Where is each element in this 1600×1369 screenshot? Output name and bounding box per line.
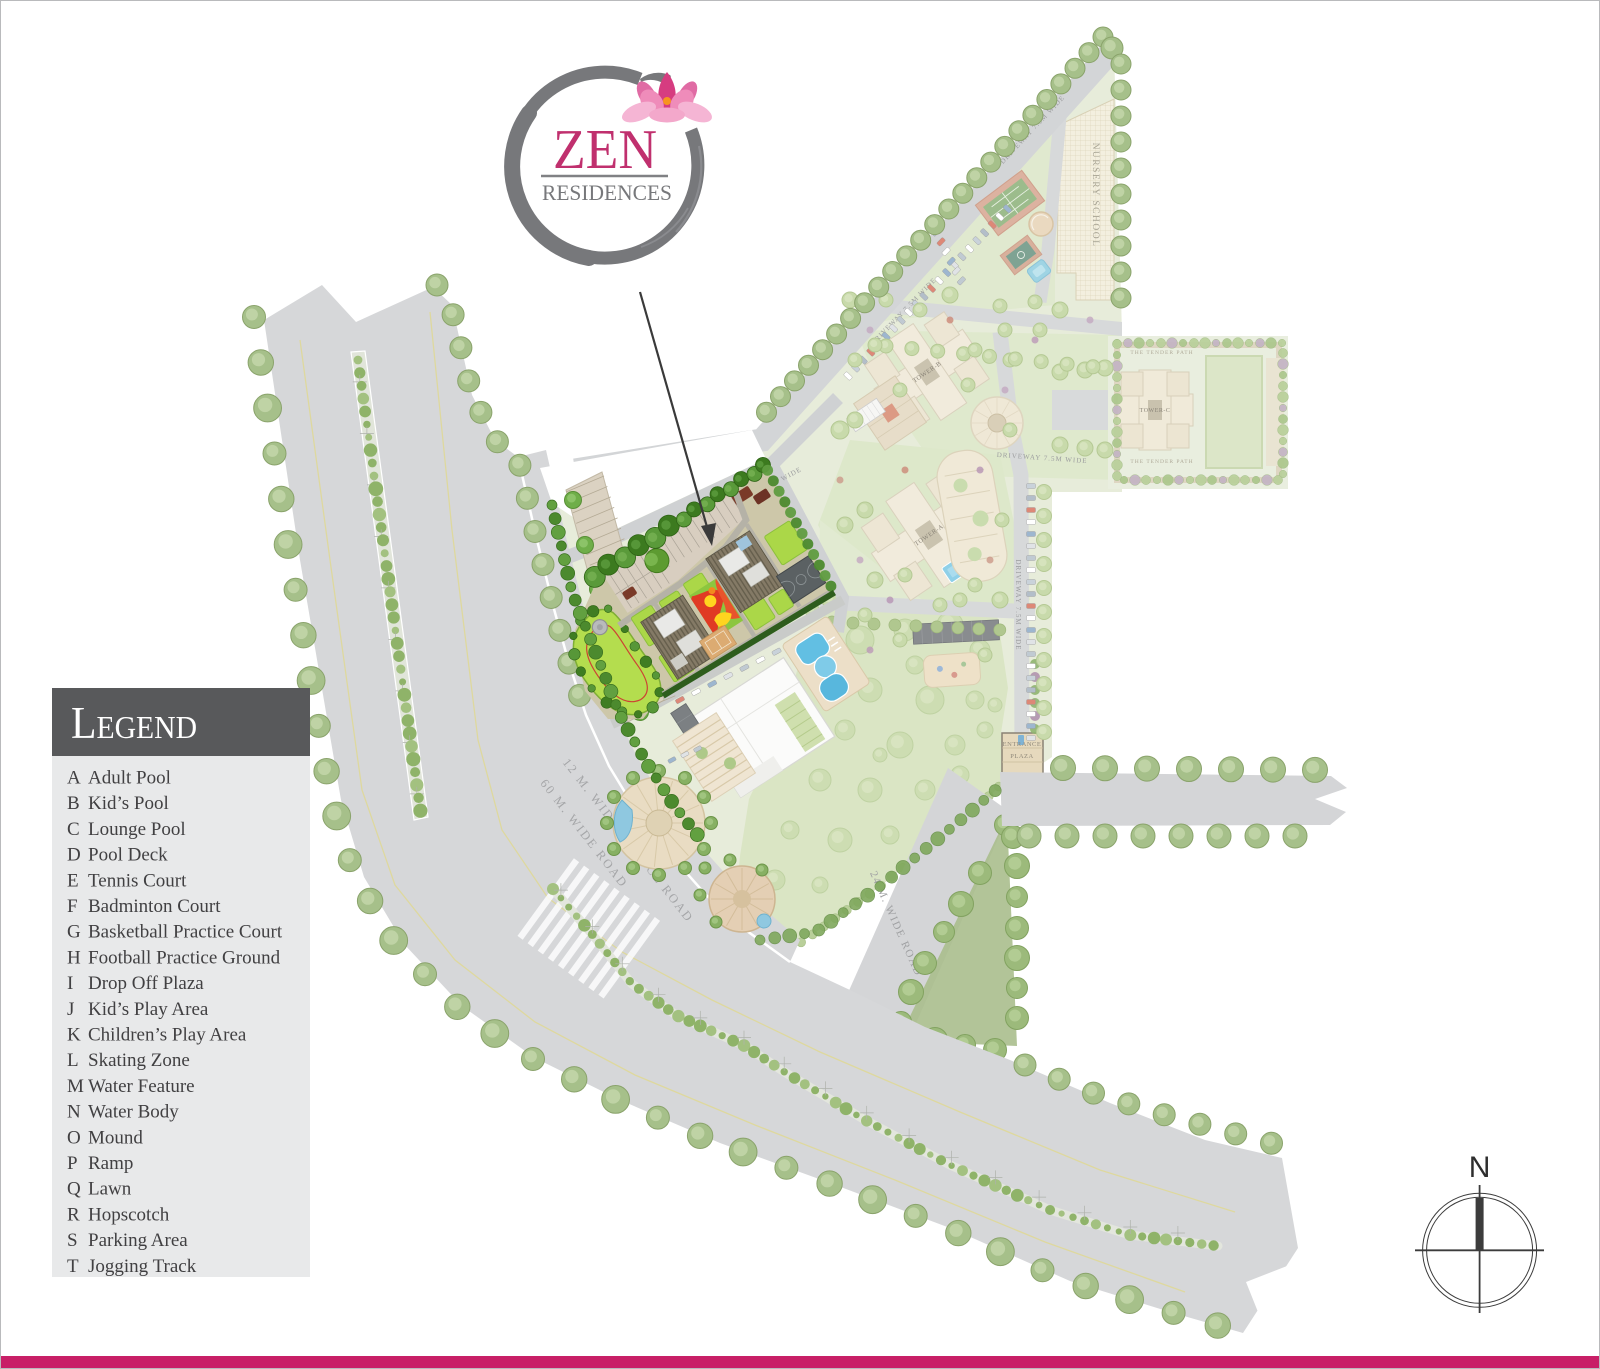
svg-text:K: K bbox=[67, 1025, 81, 1046]
svg-text:Water Body: Water Body bbox=[88, 1102, 179, 1123]
svg-text:Pool Deck: Pool Deck bbox=[88, 845, 168, 866]
svg-text:D: D bbox=[67, 845, 81, 866]
svg-text:G: G bbox=[67, 922, 81, 943]
svg-text:Children’s Play Area: Children’s Play Area bbox=[88, 1025, 247, 1046]
svg-text:THE TENDER PATH: THE TENDER PATH bbox=[1130, 350, 1193, 356]
svg-text:Q: Q bbox=[67, 1179, 81, 1200]
svg-text:H: H bbox=[67, 947, 81, 968]
svg-text:J: J bbox=[67, 999, 74, 1020]
svg-text:P: P bbox=[67, 1153, 78, 1174]
svg-text:Hopscotch: Hopscotch bbox=[88, 1204, 170, 1225]
svg-text:N: N bbox=[1469, 1151, 1491, 1184]
svg-text:Parking Area: Parking Area bbox=[88, 1230, 188, 1251]
svg-text:Kid’s Pool: Kid’s Pool bbox=[88, 793, 169, 814]
svg-text:Football Practice Ground: Football Practice Ground bbox=[88, 947, 281, 968]
svg-text:Jogging Track: Jogging Track bbox=[88, 1256, 197, 1277]
svg-text:RESIDENCES: RESIDENCES bbox=[542, 180, 672, 205]
svg-text:B: B bbox=[67, 793, 80, 814]
svg-text:THE TENDER PATH: THE TENDER PATH bbox=[1130, 459, 1193, 465]
svg-text:NURSERY SCHOOL: NURSERY SCHOOL bbox=[1090, 143, 1100, 248]
svg-text:TOWER-C: TOWER-C bbox=[1140, 408, 1171, 414]
svg-text:N: N bbox=[67, 1102, 81, 1123]
svg-text:I: I bbox=[67, 973, 73, 994]
svg-text:Water Feature: Water Feature bbox=[88, 1076, 195, 1097]
svg-text:A: A bbox=[67, 768, 81, 789]
svg-text:Kid’s Play Area: Kid’s Play Area bbox=[88, 999, 209, 1020]
svg-text:Ramp: Ramp bbox=[88, 1153, 133, 1174]
svg-text:Basketball Practice Court: Basketball Practice Court bbox=[88, 922, 283, 943]
svg-text:F: F bbox=[67, 896, 78, 917]
svg-text:DRIVEWAY 7.5M WIDE: DRIVEWAY 7.5M WIDE bbox=[1014, 559, 1022, 650]
svg-text:R: R bbox=[67, 1204, 80, 1225]
svg-text:Badminton Court: Badminton Court bbox=[88, 896, 221, 917]
svg-text:Adult Pool: Adult Pool bbox=[88, 768, 171, 789]
svg-text:E: E bbox=[67, 870, 79, 891]
svg-text:C: C bbox=[67, 819, 80, 840]
svg-text:Lounge Pool: Lounge Pool bbox=[88, 819, 186, 840]
svg-text:Lawn: Lawn bbox=[88, 1179, 132, 1200]
svg-text:T: T bbox=[67, 1256, 79, 1277]
svg-text:ENTRANCE: ENTRANCE bbox=[1003, 741, 1042, 748]
svg-text:Skating Zone: Skating Zone bbox=[88, 1050, 190, 1071]
svg-text:M: M bbox=[67, 1076, 84, 1097]
svg-text:L: L bbox=[67, 1050, 79, 1071]
svg-text:S: S bbox=[67, 1230, 78, 1251]
svg-text:Mound: Mound bbox=[88, 1127, 143, 1148]
svg-text:PLAZA: PLAZA bbox=[1010, 753, 1033, 760]
svg-text:O: O bbox=[67, 1127, 81, 1148]
svg-text:Tennis Court: Tennis Court bbox=[88, 870, 187, 891]
svg-text:Drop Off Plaza: Drop Off Plaza bbox=[88, 973, 204, 994]
svg-text:ZEN: ZEN bbox=[553, 119, 657, 181]
